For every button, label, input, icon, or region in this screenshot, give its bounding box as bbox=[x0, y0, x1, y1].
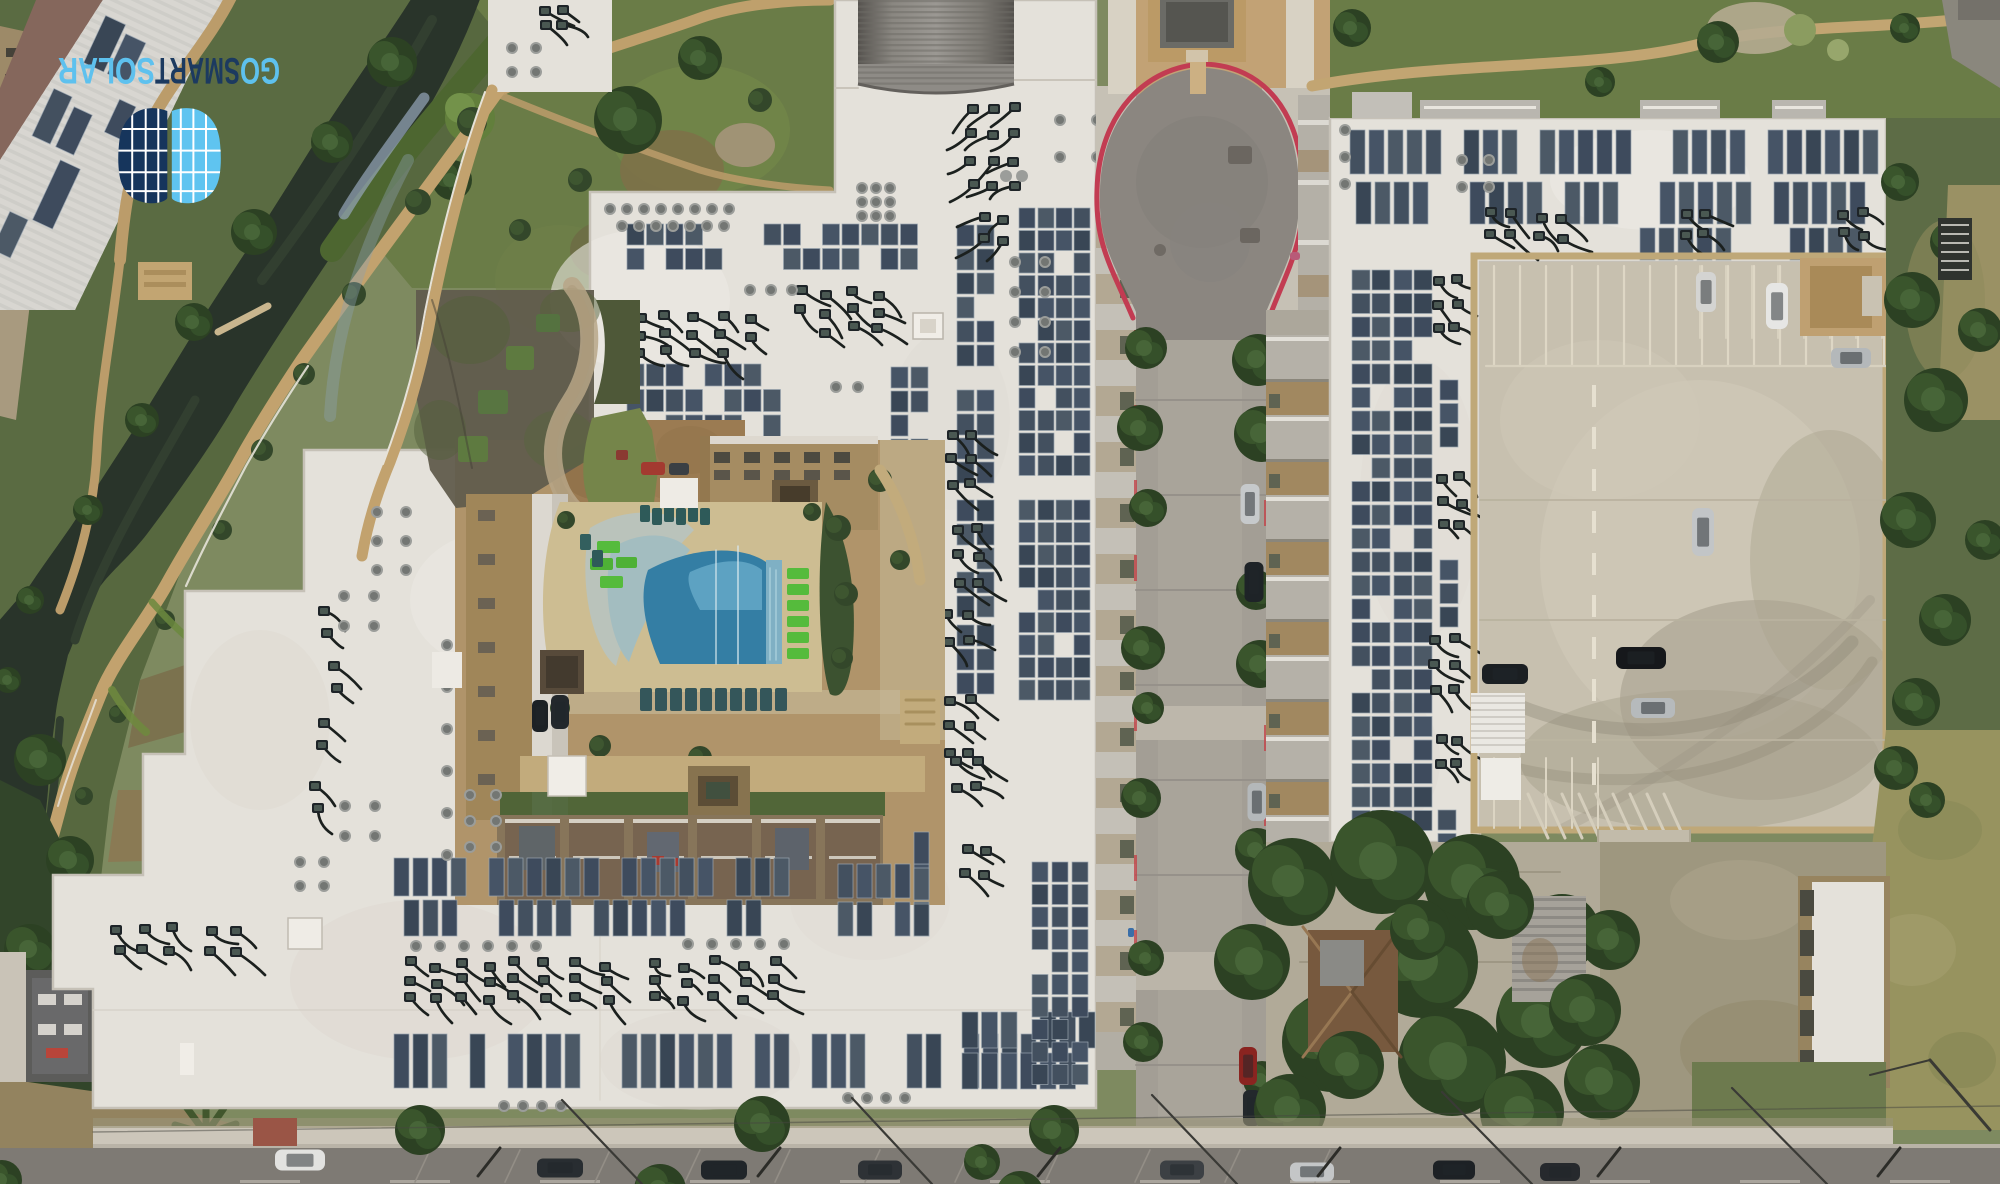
svg-text:GO: GO bbox=[240, 50, 280, 91]
svg-text:SMART: SMART bbox=[155, 50, 240, 91]
svg-text:SOLAR: SOLAR bbox=[58, 50, 155, 91]
